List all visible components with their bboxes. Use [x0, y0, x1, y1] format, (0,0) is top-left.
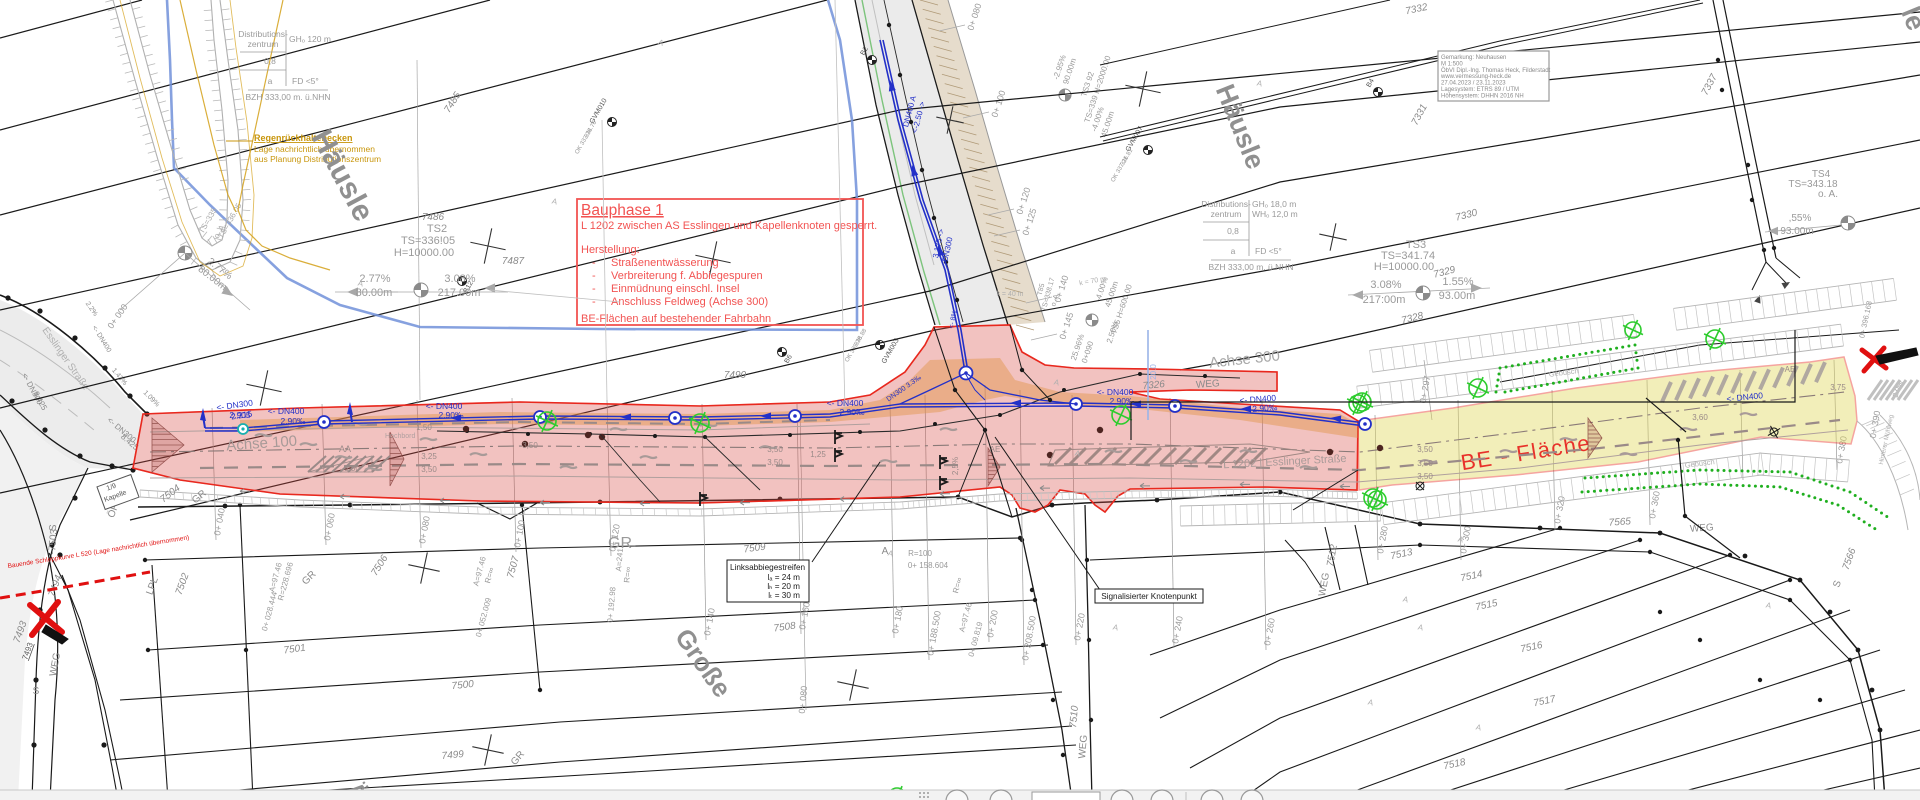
svg-text:AA: AA [339, 444, 351, 454]
svg-text:Signalisierter Knotenpunkt: Signalisierter Knotenpunkt [1101, 592, 1197, 601]
svg-text:lₕ = 20 m: lₕ = 20 m [767, 582, 800, 591]
svg-text:3,50: 3,50 [1417, 445, 1433, 454]
svg-text:zentrum: zentrum [248, 39, 279, 49]
svg-text:Distributions-: Distributions- [1201, 199, 1251, 209]
svg-text:Lagesystem: ETRS 89 / UTM: Lagesystem: ETRS 89 / UTM [1441, 87, 1519, 93]
svg-text:M 1:500: M 1:500 [1441, 61, 1463, 67]
svg-text:FD <5°: FD <5° [1255, 246, 1282, 256]
svg-text:Einmüdnung einschl. Insel: Einmüdnung einschl. Insel [611, 283, 739, 295]
svg-text:Distributions-: Distributions- [238, 29, 288, 39]
svg-text:2,5%: 2,5% [951, 457, 960, 475]
svg-text:Verbreiterung f. Abbiegespuren: Verbreiterung f. Abbiegespuren [611, 270, 763, 282]
svg-text:BZH 333,00 m. ü.NHN: BZH 333,00 m. ü.NHN [245, 92, 330, 102]
svg-text:2.90‰: 2.90‰ [280, 416, 306, 426]
svg-text:R=100: R=100 [908, 549, 932, 558]
svg-text:a: a [1231, 246, 1236, 256]
svg-text:FD <5°: FD <5° [292, 76, 319, 86]
svg-text:0,8: 0,8 [1227, 226, 1239, 236]
svg-text:Herstellung:: Herstellung: [581, 244, 640, 256]
svg-text:www.vermessung-heck.de: www.vermessung-heck.de [1440, 74, 1512, 80]
svg-text:2.90‰: 2.90‰ [1252, 402, 1278, 414]
svg-text:3,75: 3,75 [1830, 383, 1846, 392]
svg-text:3,50: 3,50 [767, 458, 783, 467]
svg-text:L 1202 zwischen AS Esslingen u: L 1202 zwischen AS Esslingen und Kapelle… [581, 220, 877, 232]
svg-text:3,60: 3,60 [1692, 413, 1708, 422]
svg-text:R=∞: R=∞ [622, 566, 632, 583]
svg-text:1,25: 1,25 [810, 450, 826, 459]
svg-text:-: - [592, 270, 596, 282]
svg-text:217:00m: 217:00m [1363, 294, 1406, 306]
svg-text:93.00m: 93.00m [1780, 226, 1813, 237]
svg-text:S: S [48, 524, 60, 532]
svg-text:Straßenentwässerung: Straßenentwässerung [611, 257, 719, 269]
svg-text:Höhensystem: DHHN 2016 NH: Höhensystem: DHHN 2016 NH [1441, 93, 1524, 99]
svg-text:217.00m: 217.00m [438, 287, 481, 299]
svg-text:3.08%: 3.08% [444, 273, 475, 285]
svg-text:7490: 7490 [724, 370, 747, 381]
svg-text:BE-Flächen auf bestehender Fah: BE-Flächen auf bestehender Fahrbahn [581, 313, 771, 325]
svg-text:80.00m: 80.00m [356, 287, 393, 299]
svg-text:3,50: 3,50 [767, 445, 783, 454]
svg-text:H=10000.00: H=10000.00 [1374, 261, 1434, 273]
svg-text:2.90‰: 2.90‰ [839, 407, 865, 417]
svg-text:lₐ = 24 m: lₐ = 24 m [768, 573, 801, 582]
svg-text:3.08%: 3.08% [1370, 279, 1401, 291]
svg-text:GHₒ 18,0 m: GHₒ 18,0 m [1252, 199, 1296, 209]
svg-text:7486: 7486 [422, 212, 445, 223]
svg-text:,55%: ,55% [1789, 213, 1812, 224]
svg-text:20.0: 20.0 [1149, 364, 1158, 380]
svg-text:k = 40 m: k = 40 m [996, 291, 1023, 298]
svg-text:-: - [592, 257, 596, 269]
svg-text:ÖbVI Dipl.-Ing. Thomas Heck, F: ÖbVI Dipl.-Ing. Thomas Heck, Filderstadt [1441, 67, 1551, 74]
svg-text:S: S [33, 686, 40, 697]
svg-text:7510: 7510 [1068, 705, 1081, 729]
svg-text:Gemarkung: Neuhausen: Gemarkung: Neuhausen [1441, 55, 1506, 61]
svg-text:WEG: WEG [1196, 378, 1221, 391]
svg-text:GHₒ 120 m: GHₒ 120 m [289, 34, 331, 44]
svg-text:2.90‰: 2.90‰ [438, 410, 464, 420]
svg-text:BZH 333,00 m. ü.NHN: BZH 333,00 m. ü.NHN [1208, 262, 1293, 272]
svg-text:Hochbord: Hochbord [385, 433, 415, 440]
svg-text:Bauphase 1: Bauphase 1 [581, 202, 664, 219]
svg-text:0+ 158.604: 0+ 158.604 [908, 561, 949, 570]
svg-text:lₜ = 30 m: lₜ = 30 m [768, 591, 800, 600]
svg-text:3,50: 3,50 [421, 465, 437, 474]
svg-text:<- DN400: <- DN400 [268, 406, 305, 416]
svg-text:AE: AE [1785, 365, 1796, 374]
svg-text:7565: 7565 [1608, 516, 1631, 529]
svg-text:3,50: 3,50 [522, 441, 538, 450]
svg-text:TS=336!05: TS=336!05 [401, 235, 455, 247]
svg-text:3,50: 3,50 [344, 464, 360, 473]
svg-text:o. A.: o. A. [1818, 189, 1838, 200]
svg-text:7487: 7487 [502, 256, 525, 267]
svg-text:93.00m: 93.00m [1439, 290, 1476, 302]
svg-text:-: - [592, 283, 596, 295]
svg-text:Linksabbiegestreifen: Linksabbiegestreifen [730, 563, 806, 572]
svg-text:Anschluss Feldweg (Achse 300): Anschluss Feldweg (Achse 300) [611, 296, 768, 308]
svg-text:zentrum: zentrum [1211, 209, 1242, 219]
svg-text:0,8: 0,8 [264, 56, 276, 66]
svg-text:H=10000.00: H=10000.00 [394, 247, 454, 259]
svg-text:1,50: 1,50 [416, 423, 432, 432]
svg-text:3,50: 3,50 [1417, 472, 1433, 481]
svg-text:WEG: WEG [1077, 734, 1090, 759]
svg-text:27.04.2023 / 23.11.2023: 27.04.2023 / 23.11.2023 [1441, 81, 1506, 87]
svg-text:WHₒ 12,0 m: WHₒ 12,0 m [1252, 209, 1298, 219]
svg-text:3,25: 3,25 [421, 452, 437, 461]
svg-text:7499: 7499 [441, 749, 465, 762]
svg-text:3,50: 3,50 [1417, 459, 1433, 468]
svg-text:a: a [268, 76, 273, 86]
svg-text:1.55%: 1.55% [1442, 276, 1473, 288]
svg-text:-: - [592, 296, 596, 308]
svg-text:7326: 7326 [1142, 379, 1166, 392]
svg-text:TS2: TS2 [427, 223, 447, 235]
